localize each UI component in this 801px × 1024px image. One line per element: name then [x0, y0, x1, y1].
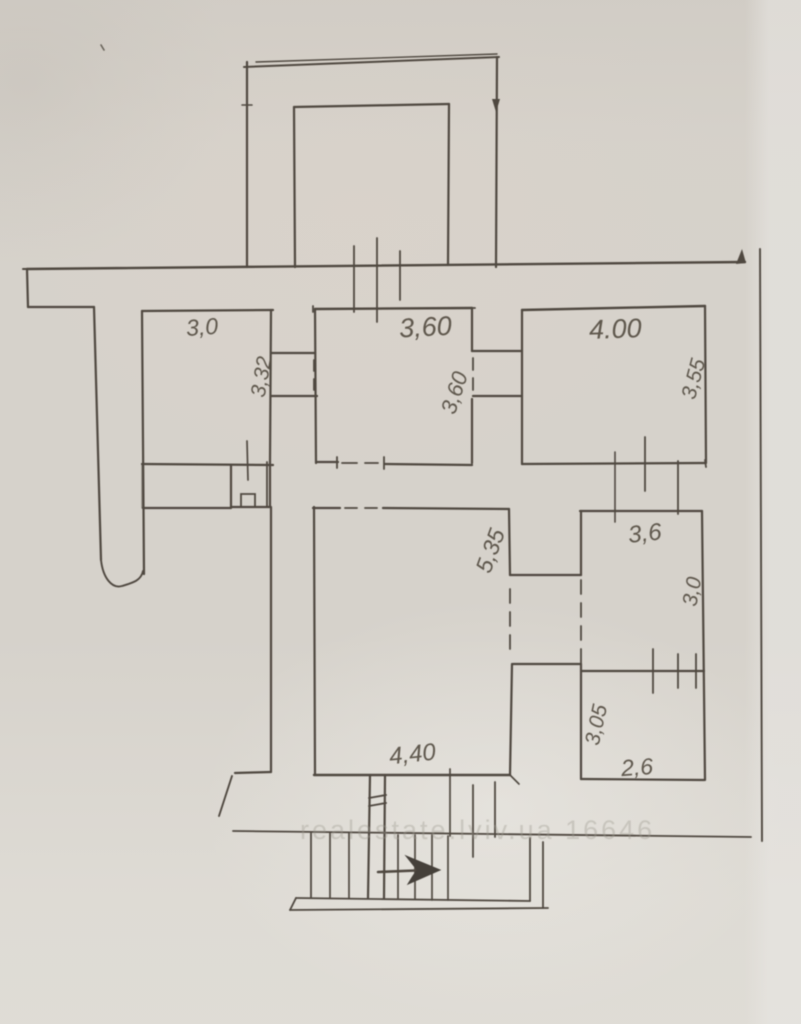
svg-text:3,0: 3,0 [185, 313, 219, 341]
svg-text:4.00: 4.00 [589, 313, 643, 345]
svg-text:3,05: 3,05 [581, 702, 612, 747]
svg-text:4,40: 4,40 [388, 739, 438, 771]
svg-text:3,32: 3,32 [247, 354, 277, 399]
svg-text:3,60: 3,60 [398, 311, 452, 344]
svg-text:5,35: 5,35 [470, 525, 510, 576]
svg-text:3,60: 3,60 [436, 368, 473, 417]
svg-text:3,6: 3,6 [627, 518, 664, 548]
svg-text:realestate.lviv.ua 16646: realestate.lviv.ua 16646 [300, 815, 655, 845]
svg-text:2,6: 2,6 [619, 753, 654, 781]
